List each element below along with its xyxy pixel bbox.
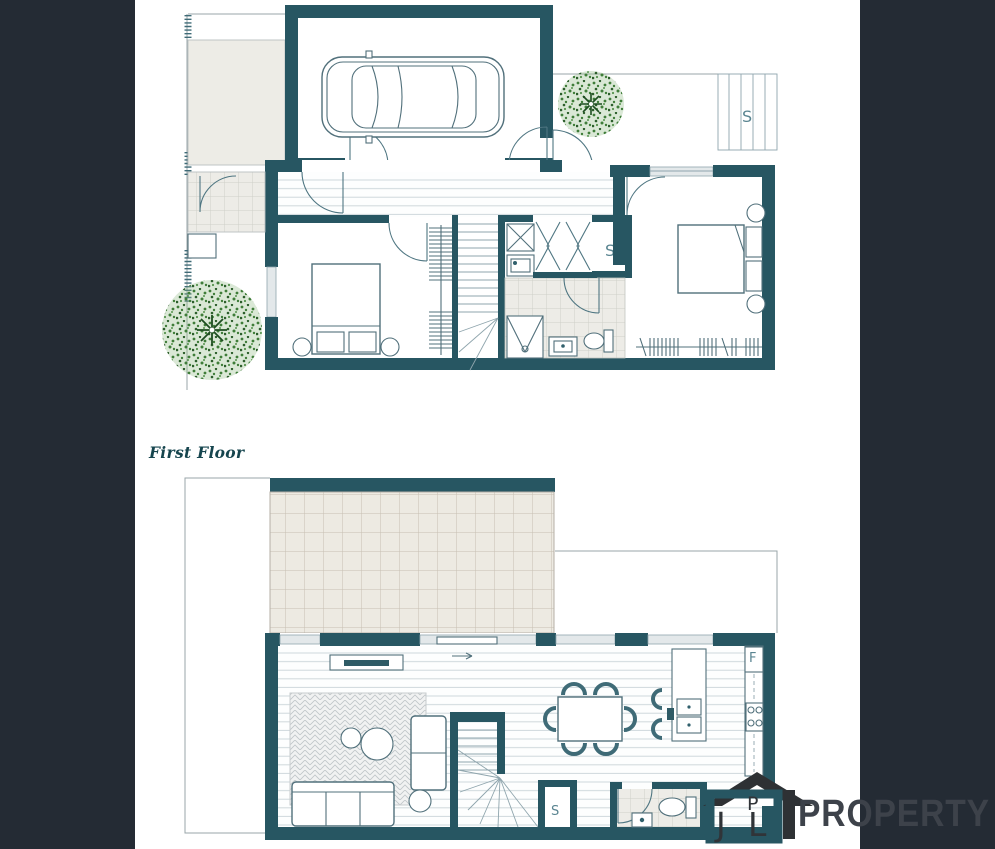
bathroom [505,272,625,358]
logo-letter-l: L [748,805,767,844]
garage [285,5,553,173]
tree-icon [162,280,262,380]
coffee-table [361,728,393,760]
property-floorplan-image: S [0,0,995,849]
armchair [411,716,446,790]
fridge-label: F [749,651,756,666]
storage-closet: S [538,780,577,827]
cooktop [746,703,763,731]
deck-storage-label: S [742,107,752,126]
right-panel [860,0,995,849]
coffee-table [341,728,361,748]
first-floor-title: First Floor [148,443,246,462]
left-panel [0,0,135,849]
sofa [292,782,394,826]
tree-icon [558,71,624,137]
courtyard [188,40,285,165]
first-floor-storage-label: S [551,804,559,819]
sliding-door [437,637,497,644]
ground-floor-body: S [265,160,775,370]
floorplan-canvas: S [0,0,995,849]
terrace [270,478,555,633]
logo-letter-j: J [714,805,726,844]
side-table [409,790,431,812]
logo-wordmark: PROPERTY [798,793,990,835]
first-floor-body: S [265,633,775,840]
car-icon [322,51,504,143]
